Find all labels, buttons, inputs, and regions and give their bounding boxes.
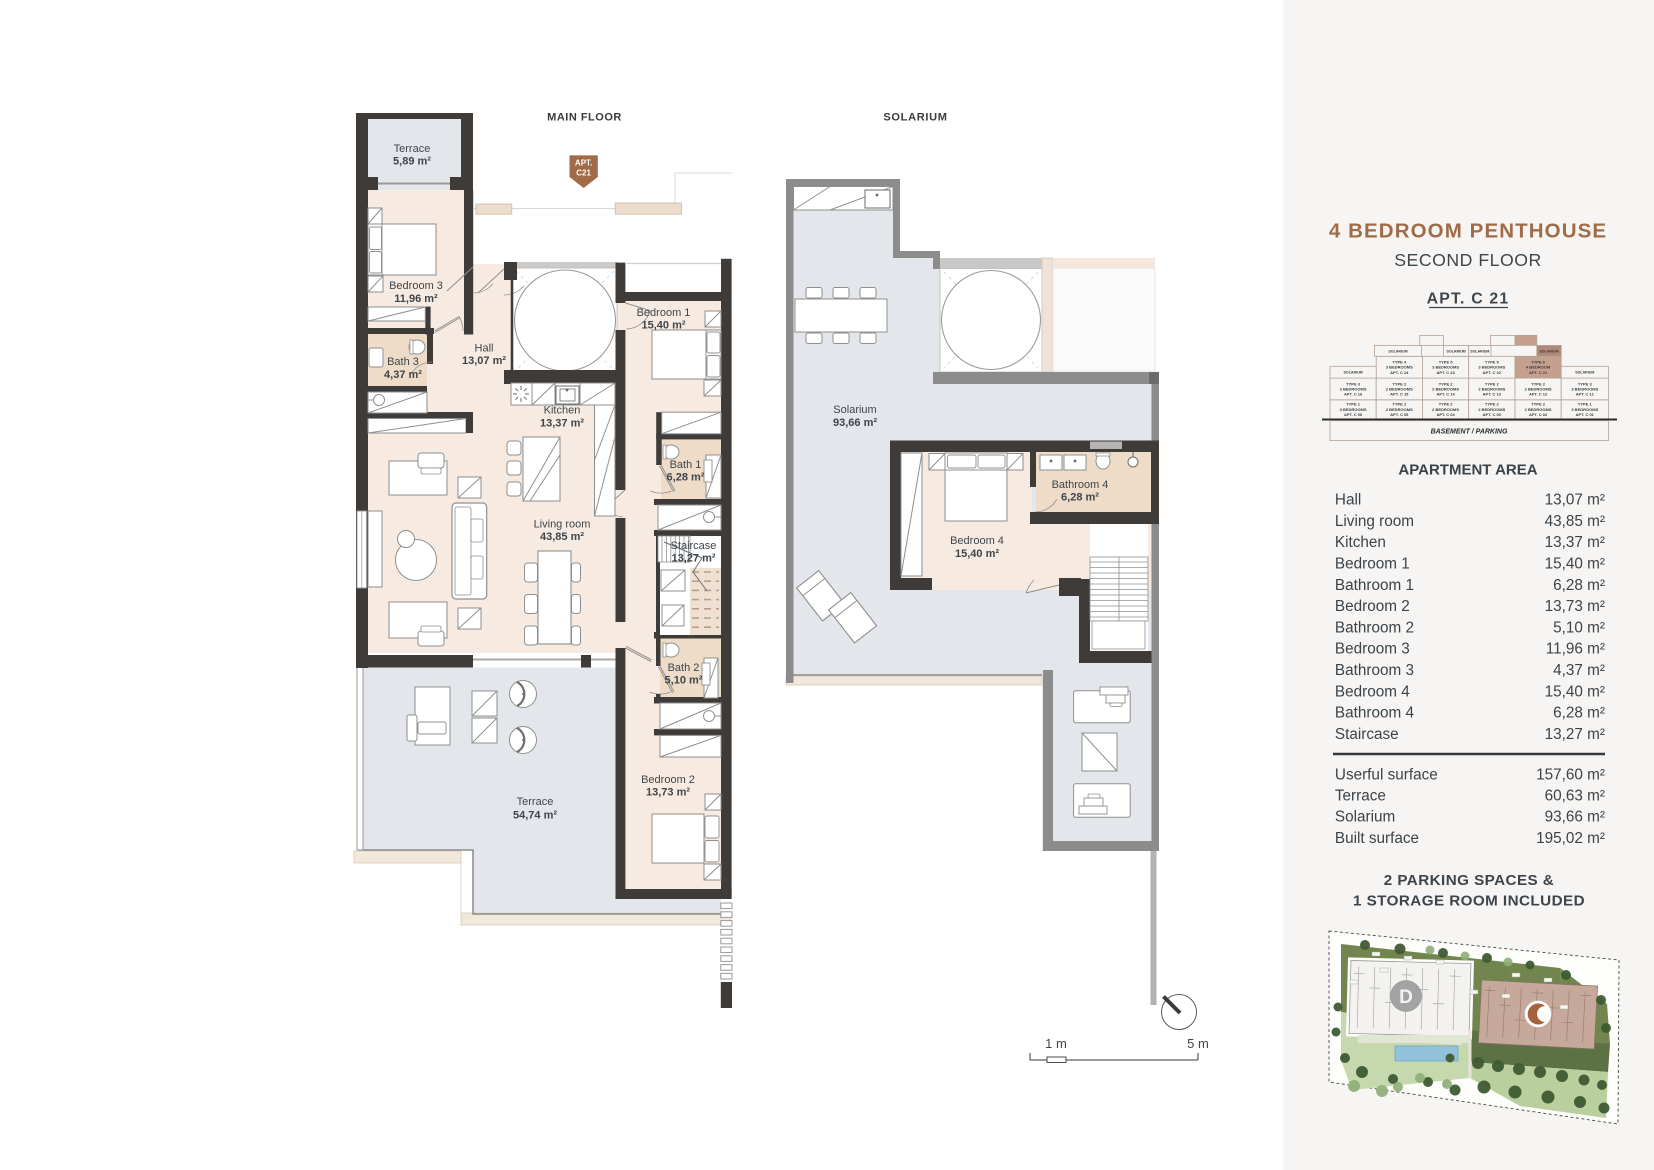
svg-text:Kitchen: Kitchen — [1335, 534, 1386, 551]
svg-text:Staircase: Staircase — [671, 540, 717, 552]
svg-text:APT. C 01: APT. C 01 — [1576, 412, 1595, 417]
svg-text:APT. C 24: APT. C 24 — [1390, 370, 1409, 375]
svg-text:Terrace: Terrace — [394, 143, 431, 155]
svg-text:SOLARIUM: SOLARIUM — [1344, 371, 1363, 375]
svg-text:APT. C 12: APT. C 12 — [1529, 392, 1548, 397]
svg-text:Hall: Hall — [475, 343, 494, 355]
svg-text:Solarium: Solarium — [1335, 809, 1395, 826]
svg-text:13,27 m²: 13,27 m² — [671, 553, 715, 565]
svg-text:Bedroom 3: Bedroom 3 — [1335, 641, 1410, 658]
svg-text:Hall: Hall — [1335, 492, 1361, 509]
svg-text:SOLARIUM: SOLARIUM — [1388, 349, 1407, 353]
svg-text:Bathroom 1: Bathroom 1 — [1335, 577, 1414, 594]
svg-text:13,07 m²: 13,07 m² — [462, 355, 506, 367]
svg-text:43,85 m²: 43,85 m² — [540, 531, 584, 543]
svg-text:15,40 m²: 15,40 m² — [1545, 556, 1605, 573]
svg-text:43,85 m²: 43,85 m² — [1545, 513, 1605, 530]
svg-text:11,96 m²: 11,96 m² — [394, 293, 438, 305]
svg-text:5 m: 5 m — [1187, 1036, 1209, 1051]
svg-text:4,37 m²: 4,37 m² — [1553, 662, 1605, 679]
svg-text:Bedroom 2: Bedroom 2 — [1335, 598, 1410, 615]
svg-text:C21: C21 — [576, 169, 591, 178]
svg-text:Bathroom 4: Bathroom 4 — [1335, 705, 1415, 722]
svg-text:APT. C 05: APT. C 05 — [1390, 412, 1409, 417]
svg-text:13,27 m²: 13,27 m² — [1545, 726, 1605, 743]
svg-text:Built surface: Built surface — [1335, 830, 1419, 847]
svg-text:APT. C 15: APT. C 15 — [1390, 392, 1409, 397]
svg-text:Living room: Living room — [534, 519, 591, 531]
svg-text:13,73 m²: 13,73 m² — [646, 787, 690, 799]
svg-text:15,40 m²: 15,40 m² — [1545, 683, 1605, 700]
svg-text:Bedroom 4: Bedroom 4 — [1335, 683, 1410, 700]
svg-text:6,28 m²: 6,28 m² — [1553, 705, 1605, 722]
svg-text:15,40 m²: 15,40 m² — [641, 320, 685, 332]
svg-text:2 PARKING SPACES &: 2 PARKING SPACES & — [1384, 872, 1554, 889]
svg-text:APT. C 13: APT. C 13 — [1483, 392, 1502, 397]
svg-text:1 m: 1 m — [1045, 1036, 1067, 1051]
svg-text:Bath 1: Bath 1 — [670, 459, 702, 471]
svg-text:Bedroom 3: Bedroom 3 — [389, 280, 443, 292]
svg-text:APT. C 06: APT. C 06 — [1344, 412, 1363, 417]
svg-text:APT. C 11: APT. C 11 — [1576, 392, 1595, 397]
svg-text:SOLARIUM: SOLARIUM — [1470, 349, 1489, 353]
svg-text:Bath 3: Bath 3 — [387, 356, 419, 368]
svg-text:60,63 m²: 60,63 m² — [1545, 788, 1605, 805]
svg-text:13,37 m²: 13,37 m² — [540, 418, 584, 430]
svg-text:Bath 2: Bath 2 — [668, 662, 700, 674]
svg-text:APT. C 23: APT. C 23 — [1436, 370, 1455, 375]
svg-text:Bedroom 2: Bedroom 2 — [641, 774, 695, 786]
svg-text:MAIN FLOOR: MAIN FLOOR — [547, 112, 622, 124]
svg-text:13,37 m²: 13,37 m² — [1545, 534, 1605, 551]
svg-text:Bedroom 1: Bedroom 1 — [1335, 556, 1410, 573]
svg-text:Terrace: Terrace — [517, 796, 554, 808]
svg-text:SOLARIUM: SOLARIUM — [1447, 349, 1466, 353]
svg-text:54,74 m²: 54,74 m² — [513, 810, 557, 822]
svg-text:APT. C 03: APT. C 03 — [1483, 412, 1502, 417]
svg-text:APT. C 04: APT. C 04 — [1436, 412, 1455, 417]
svg-text:Staircase: Staircase — [1335, 726, 1399, 743]
svg-text:APT. C 14: APT. C 14 — [1436, 392, 1455, 397]
svg-text:13,07 m²: 13,07 m² — [1545, 492, 1605, 509]
svg-text:APARTMENT AREA: APARTMENT AREA — [1398, 462, 1537, 479]
svg-text:BASEMENT / PARKING: BASEMENT / PARKING — [1431, 429, 1508, 436]
svg-text:D: D — [1399, 987, 1413, 1008]
svg-text:6,28 m²: 6,28 m² — [1061, 492, 1099, 504]
svg-text:Userful surface: Userful surface — [1335, 766, 1438, 783]
svg-text:APT. C 21: APT. C 21 — [1529, 370, 1548, 375]
svg-text:Bathroom 3: Bathroom 3 — [1335, 662, 1414, 679]
svg-text:Bedroom 1: Bedroom 1 — [637, 307, 691, 319]
svg-text:157,60 m²: 157,60 m² — [1536, 766, 1605, 783]
svg-text:APT.: APT. — [575, 159, 592, 168]
svg-text:5,89 m²: 5,89 m² — [393, 156, 431, 168]
svg-text:93,66 m²: 93,66 m² — [1545, 809, 1605, 826]
svg-text:Bedroom 4: Bedroom 4 — [950, 535, 1004, 547]
svg-text:SOLARIUM: SOLARIUM — [883, 112, 947, 124]
svg-text:Bathroom 2: Bathroom 2 — [1335, 619, 1414, 636]
svg-text:5,10 m²: 5,10 m² — [665, 675, 703, 687]
svg-text:SOLARIUM: SOLARIUM — [1575, 371, 1594, 375]
svg-text:195,02 m²: 195,02 m² — [1536, 830, 1605, 847]
svg-text:SECOND FLOOR: SECOND FLOOR — [1394, 250, 1542, 270]
svg-text:15,40 m²: 15,40 m² — [955, 548, 999, 560]
svg-text:APT. C 22: APT. C 22 — [1483, 370, 1502, 375]
svg-text:6,28 m²: 6,28 m² — [667, 472, 705, 484]
svg-text:1 STORAGE ROOM INCLUDED: 1 STORAGE ROOM INCLUDED — [1353, 892, 1585, 909]
svg-text:93,66 m²: 93,66 m² — [833, 417, 877, 429]
svg-text:6,28 m²: 6,28 m² — [1553, 577, 1605, 594]
svg-text:5,10 m²: 5,10 m² — [1553, 619, 1605, 636]
svg-text:Living room: Living room — [1335, 513, 1414, 530]
svg-text:APT. C 02: APT. C 02 — [1529, 412, 1548, 417]
svg-text:4 BEDROOM PENTHOUSE: 4 BEDROOM PENTHOUSE — [1329, 220, 1607, 243]
svg-text:13,73 m²: 13,73 m² — [1545, 598, 1605, 615]
svg-text:Kitchen: Kitchen — [544, 405, 581, 417]
svg-text:4,37 m²: 4,37 m² — [384, 369, 422, 381]
svg-text:Solarium: Solarium — [833, 404, 876, 416]
svg-text:SOLARIUM: SOLARIUM — [1539, 349, 1558, 353]
svg-text:Terrace: Terrace — [1335, 788, 1386, 805]
svg-text:11,96 m²: 11,96 m² — [1546, 641, 1605, 658]
svg-text:APT. C 21: APT. C 21 — [1427, 291, 1510, 308]
svg-text:APT. C 16: APT. C 16 — [1344, 392, 1363, 397]
svg-text:Bathroom 4: Bathroom 4 — [1052, 479, 1109, 491]
